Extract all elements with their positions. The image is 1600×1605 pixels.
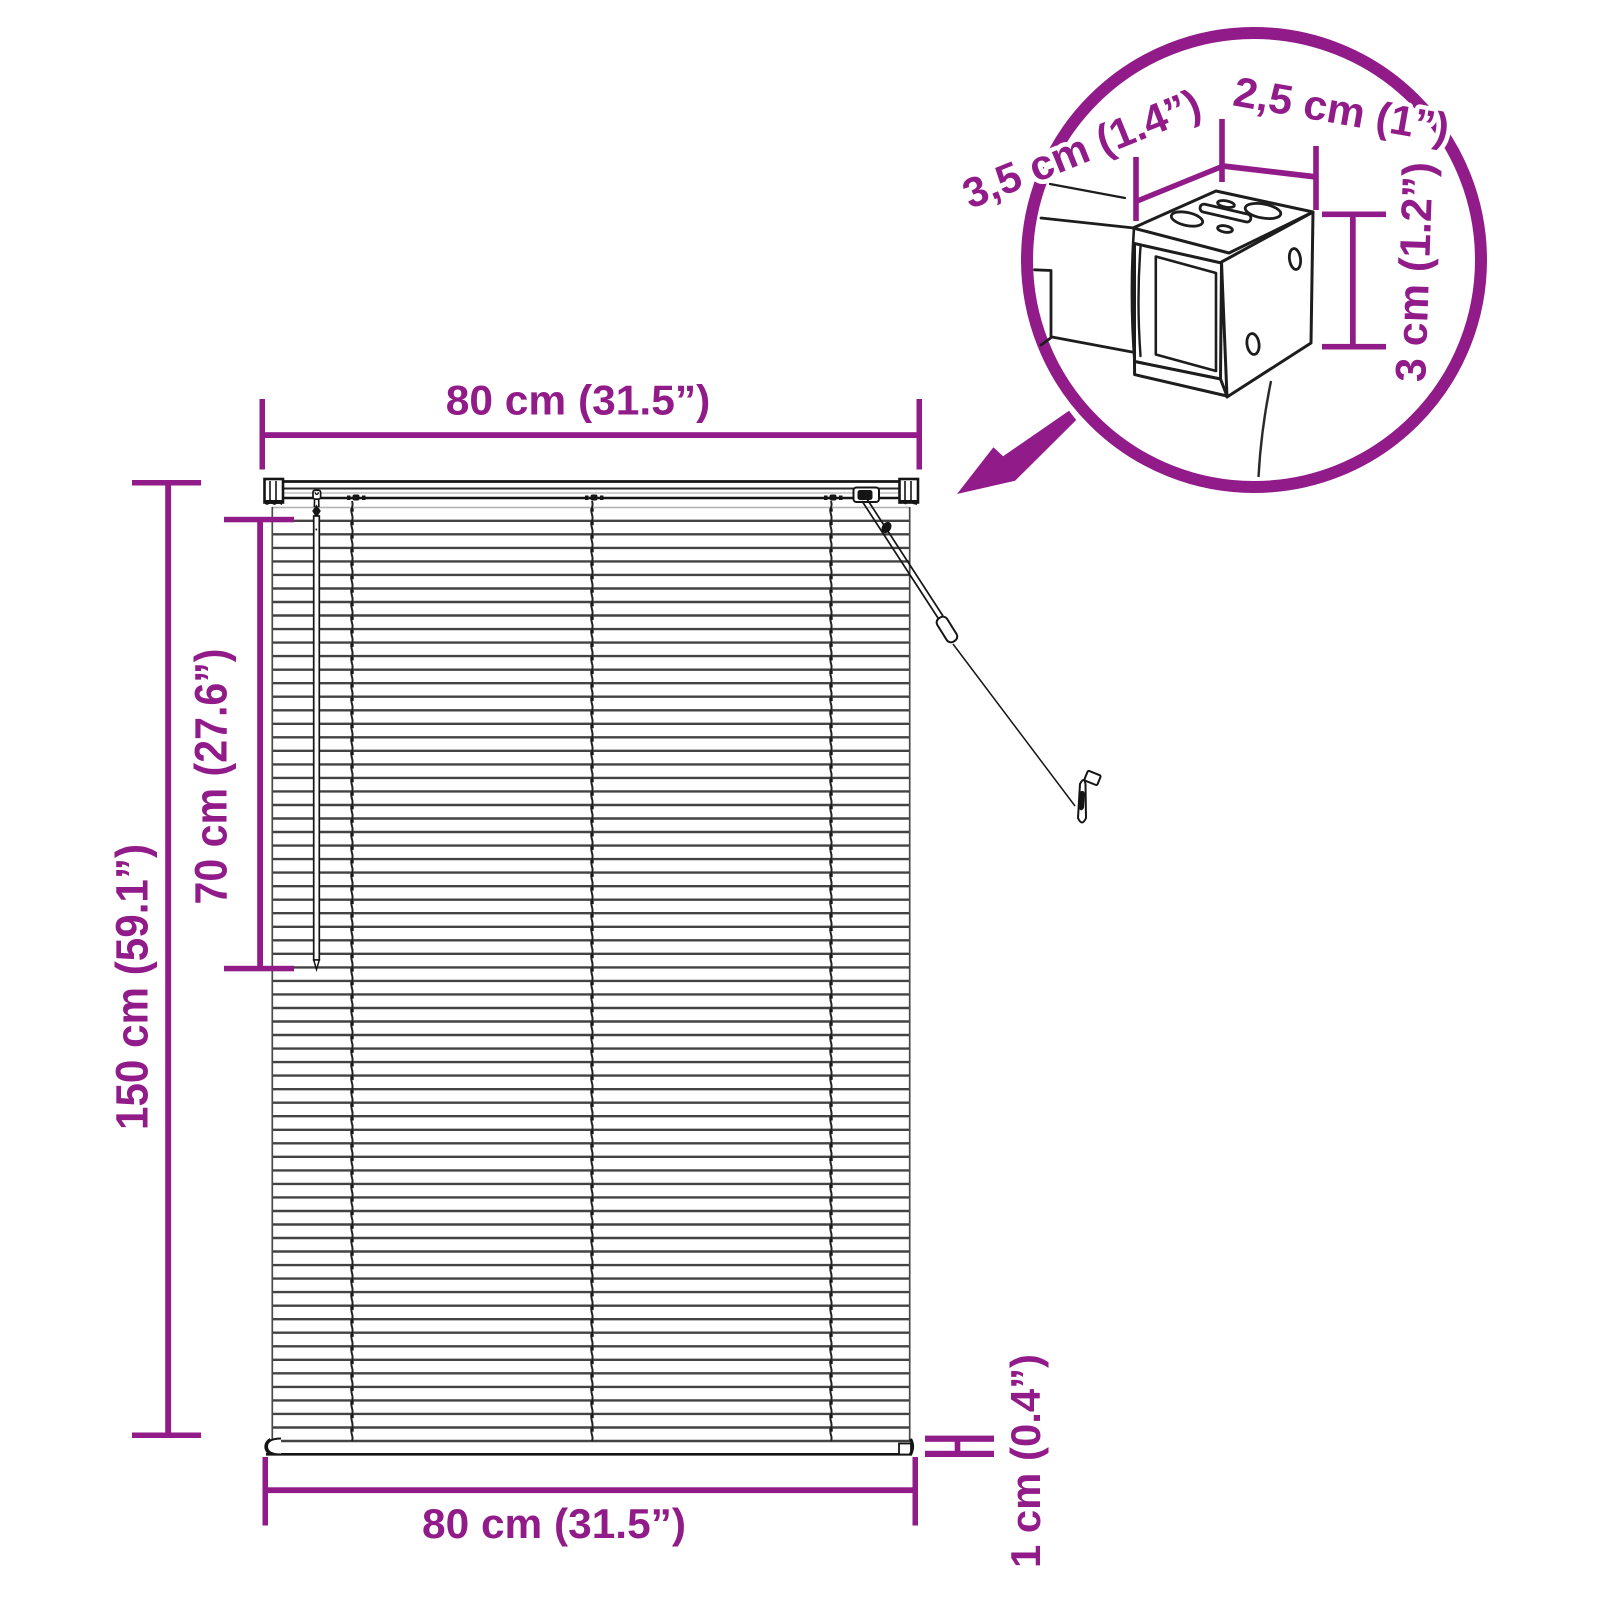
svg-text:1 cm (0.4”): 1 cm (0.4”) xyxy=(1002,1354,1049,1568)
svg-text:80 cm (31.5”): 80 cm (31.5”) xyxy=(446,377,711,424)
svg-text:3 cm (1.2”): 3 cm (1.2”) xyxy=(1387,161,1443,383)
svg-text:150 cm (59.1”): 150 cm (59.1”) xyxy=(107,844,158,1130)
svg-text:70 cm (27.6”): 70 cm (27.6”) xyxy=(186,649,237,905)
svg-text:80 cm (31.5”): 80 cm (31.5”) xyxy=(422,1500,686,1547)
